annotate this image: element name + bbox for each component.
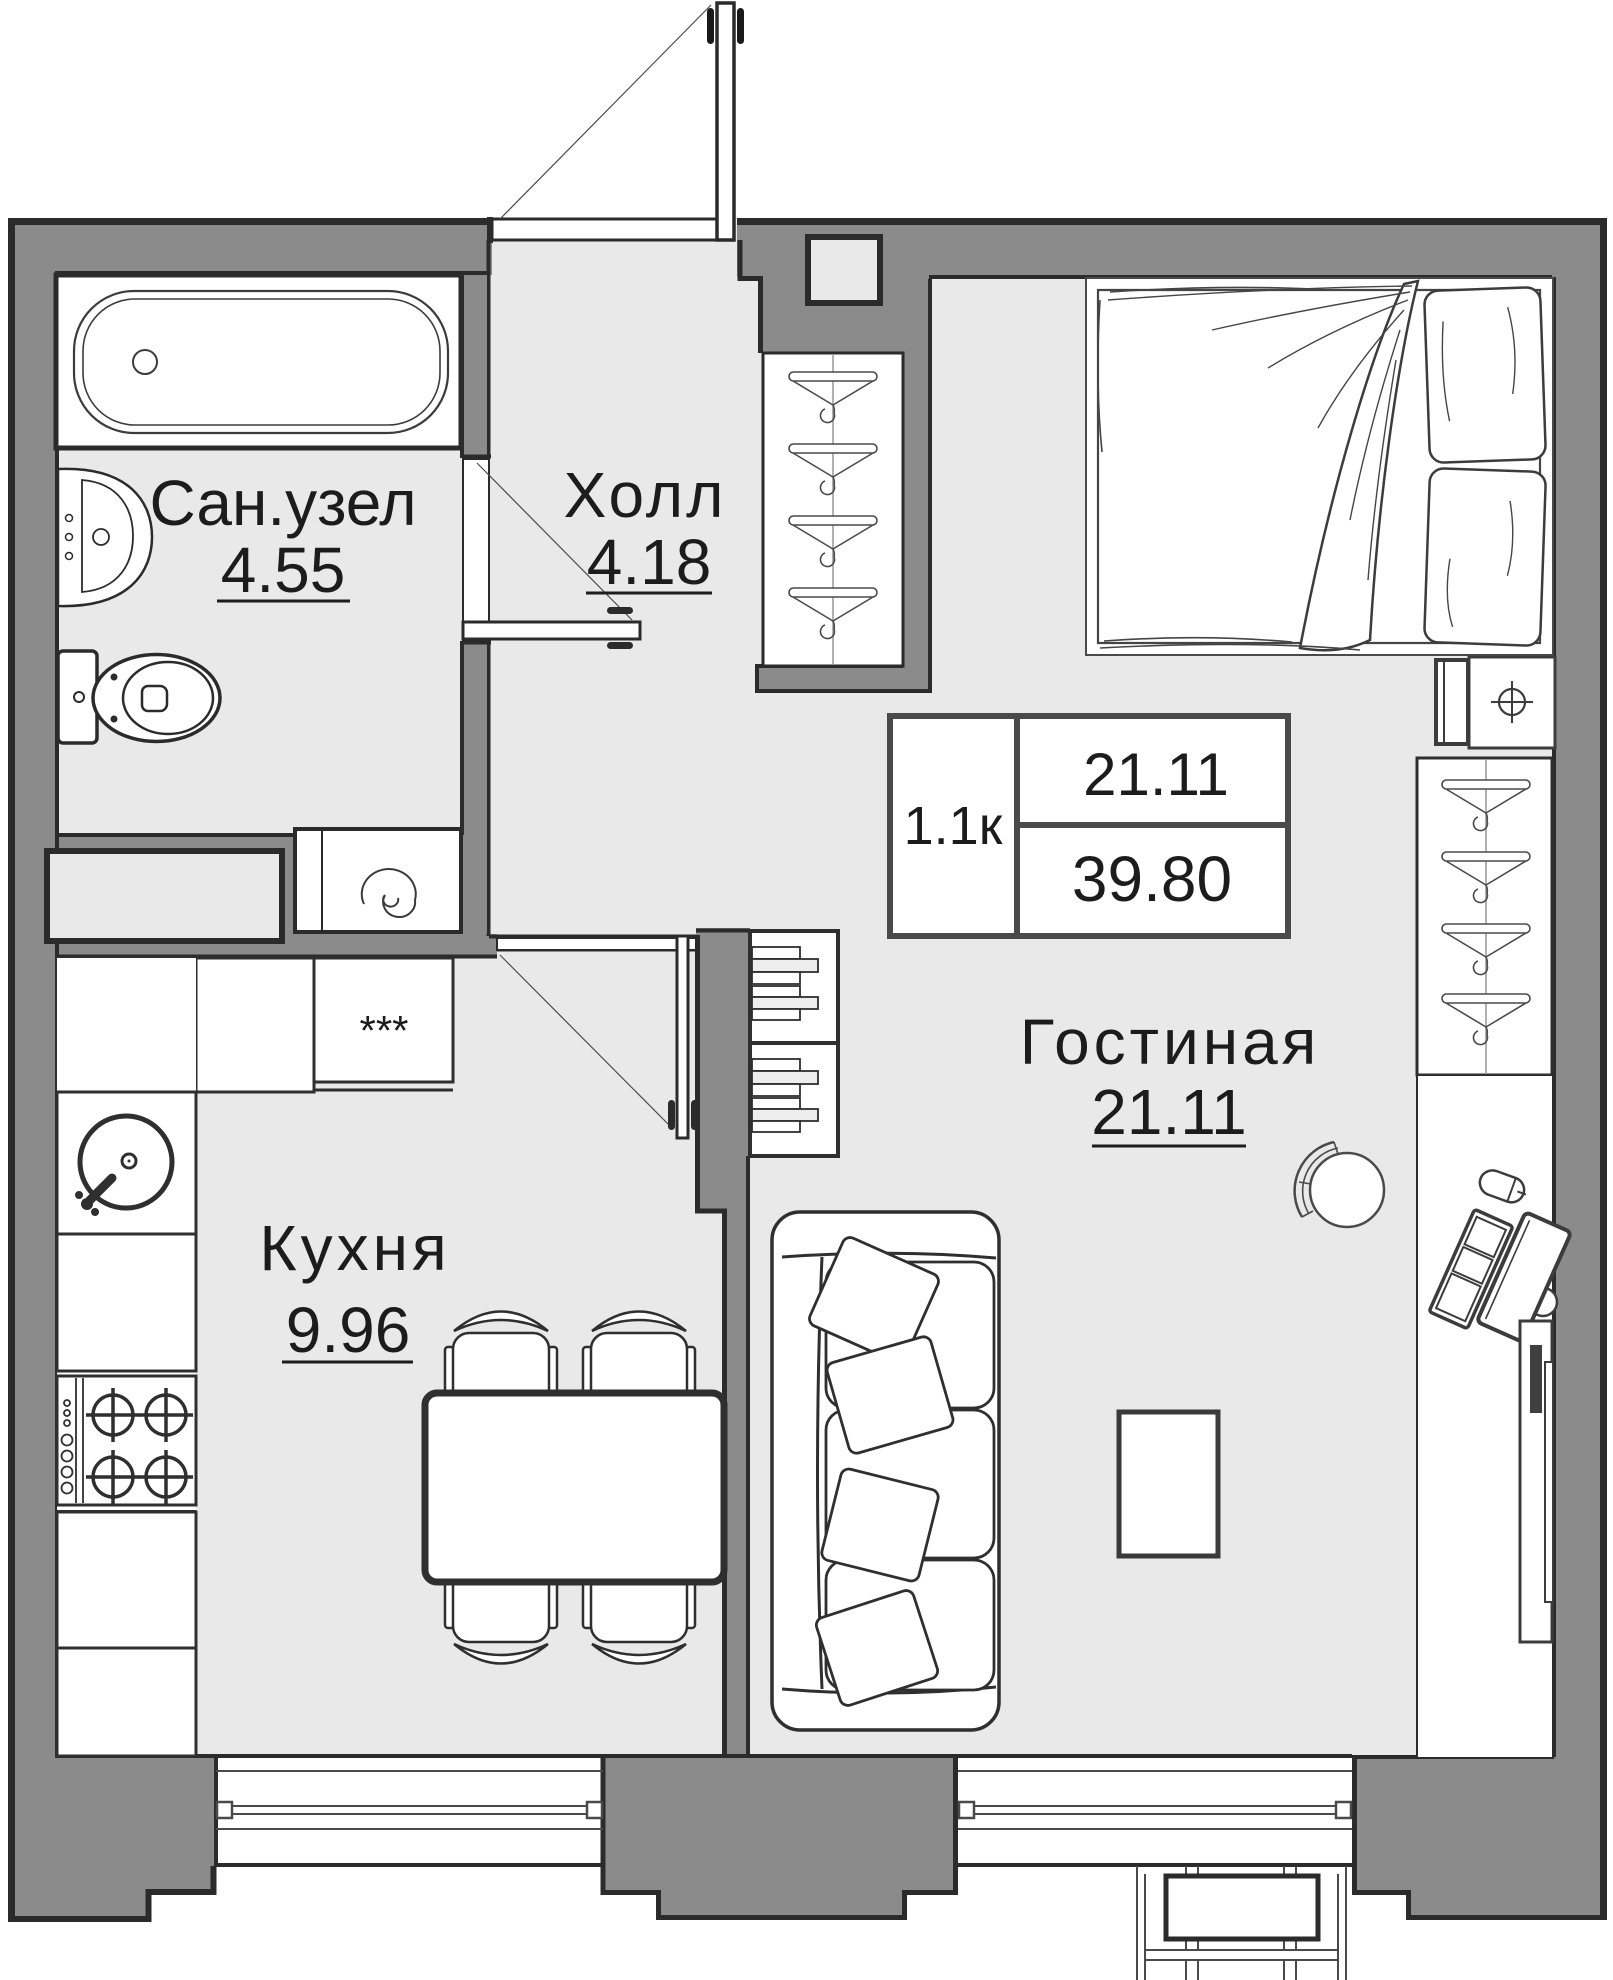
svg-text:9.96: 9.96 — [286, 1294, 411, 1366]
svg-text:***: *** — [359, 1007, 408, 1054]
svg-text:Холл: Холл — [564, 459, 727, 531]
svg-text:4.55: 4.55 — [221, 534, 346, 606]
svg-text:21.11: 21.11 — [1083, 741, 1229, 808]
svg-text:4.18: 4.18 — [587, 526, 712, 598]
svg-text:39.80: 39.80 — [1072, 843, 1232, 915]
svg-text:Гостиная: Гостиная — [1020, 1006, 1321, 1078]
svg-text:Кухня: Кухня — [259, 1212, 450, 1284]
svg-text:1.1к: 1.1к — [904, 796, 1003, 856]
svg-text:Сан.узел: Сан.узел — [149, 467, 416, 539]
svg-text:21.11: 21.11 — [1091, 1076, 1246, 1148]
